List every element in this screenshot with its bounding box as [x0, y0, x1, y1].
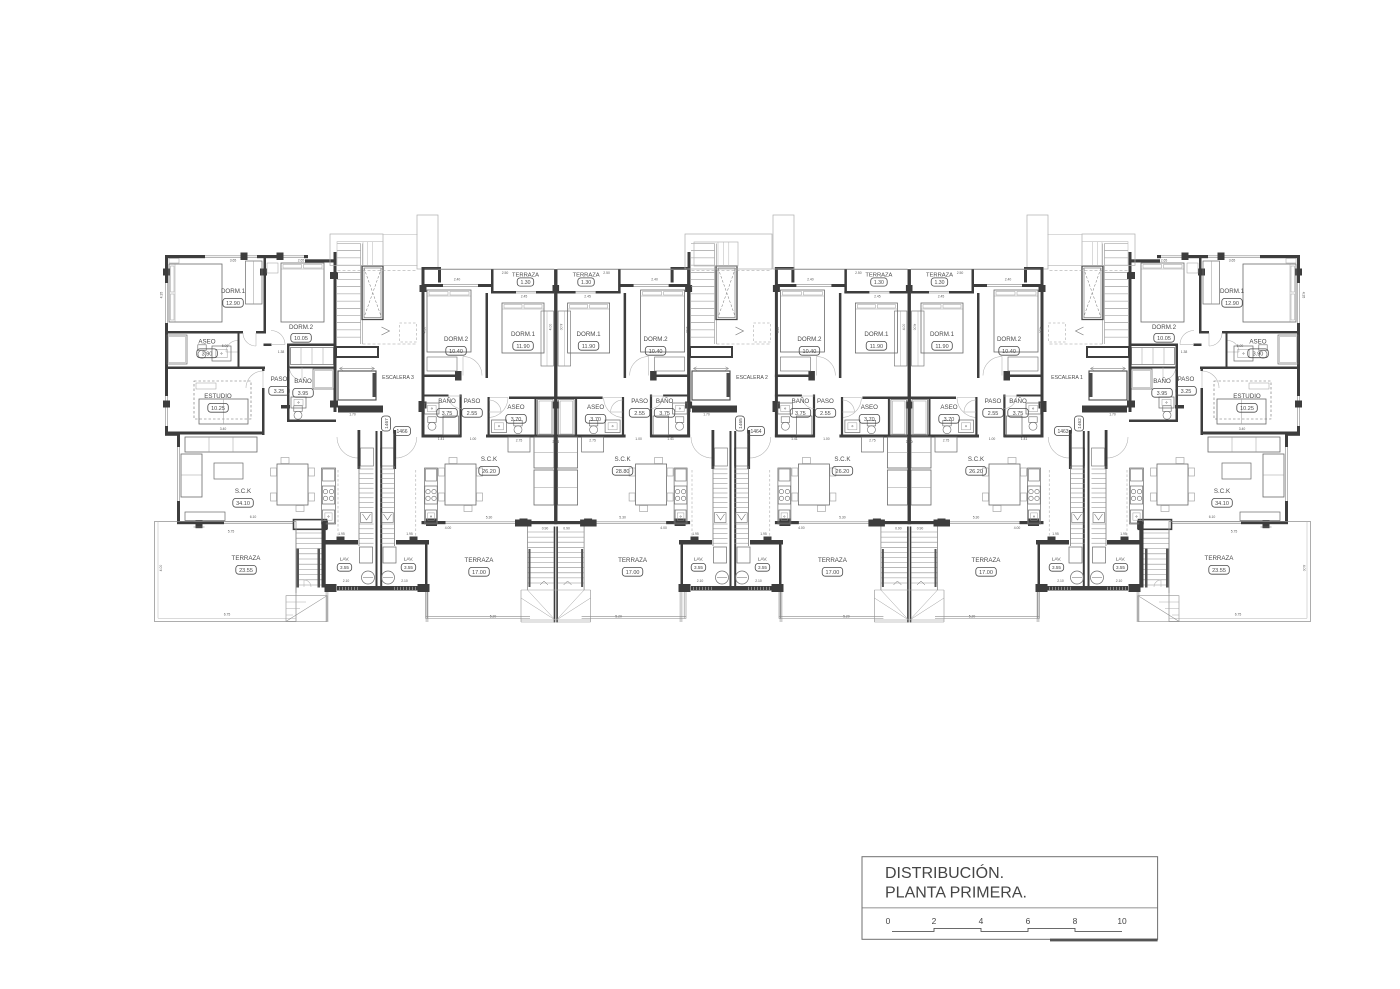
svg-text:S.C.K: S.C.K: [968, 456, 985, 463]
svg-text:5.00: 5.00: [1237, 344, 1244, 348]
svg-text:5.00: 5.00: [222, 344, 229, 348]
svg-text:5.30: 5.30: [839, 516, 846, 520]
svg-text:10.40: 10.40: [449, 349, 463, 355]
svg-text:5.75: 5.75: [228, 530, 235, 534]
svg-text:2.55: 2.55: [988, 411, 999, 417]
svg-text:3.00: 3.00: [552, 440, 559, 444]
svg-text:BAÑO: BAÑO: [1009, 398, 1027, 405]
svg-text:1465: 1465: [738, 418, 744, 429]
svg-text:ESCALERA 3: ESCALERA 3: [382, 375, 414, 381]
svg-text:PLANTA PRIMERA.: PLANTA PRIMERA.: [885, 884, 1027, 901]
svg-text:2.40: 2.40: [1005, 278, 1012, 282]
svg-text:4: 4: [979, 916, 984, 926]
svg-text:2.50: 2.50: [957, 271, 964, 275]
svg-text:3.55: 3.55: [758, 565, 767, 570]
svg-text:2.10: 2.10: [1057, 579, 1064, 583]
svg-text:1.00: 1.00: [989, 437, 996, 441]
svg-text:2.55: 2.55: [634, 411, 645, 417]
svg-text:DORM.1: DORM.1: [221, 288, 246, 295]
svg-text:11.90: 11.90: [516, 344, 529, 350]
svg-text:ESCALERA 2: ESCALERA 2: [736, 375, 768, 381]
svg-text:4.00: 4.00: [902, 324, 906, 331]
svg-text:PASO: PASO: [271, 376, 288, 383]
svg-text:1.95: 1.95: [692, 532, 699, 536]
svg-text:TERRAZA: TERRAZA: [618, 557, 648, 564]
svg-text:ASEO: ASEO: [1249, 339, 1266, 346]
svg-text:DORM.2: DORM.2: [444, 336, 469, 343]
svg-text:3.25: 3.25: [1181, 389, 1192, 395]
svg-text:LAV.: LAV.: [404, 557, 414, 563]
svg-text:12.90: 12.90: [1225, 301, 1239, 307]
svg-text:DORM.1: DORM.1: [577, 331, 602, 338]
svg-text:2.55: 2.55: [820, 411, 831, 417]
svg-text:5.20: 5.20: [490, 615, 497, 619]
svg-text:2.50: 2.50: [603, 271, 610, 275]
svg-text:2.10: 2.10: [755, 579, 762, 583]
svg-text:4.00: 4.00: [445, 526, 452, 530]
svg-text:ESTUDIO: ESTUDIO: [204, 393, 232, 400]
svg-text:3.00: 3.00: [906, 440, 913, 444]
svg-text:2.40: 2.40: [807, 278, 814, 282]
svg-text:1.41: 1.41: [791, 437, 798, 441]
svg-text:PASO: PASO: [464, 398, 481, 405]
svg-text:4.00: 4.00: [1014, 526, 1021, 530]
svg-text:0.90: 0.90: [563, 527, 570, 531]
svg-text:1.41: 1.41: [438, 437, 445, 441]
svg-text:3.75: 3.75: [442, 411, 453, 417]
svg-text:1.38: 1.38: [278, 350, 285, 354]
svg-text:10.40: 10.40: [803, 349, 817, 355]
svg-text:2.75: 2.75: [869, 439, 876, 443]
svg-text:ASEO: ASEO: [587, 404, 604, 411]
svg-text:4.00: 4.00: [159, 565, 163, 572]
svg-text:6.75: 6.75: [1235, 613, 1242, 617]
svg-text:10.25: 10.25: [1240, 406, 1254, 412]
svg-text:1462: 1462: [1077, 418, 1083, 429]
svg-text:4.00: 4.00: [798, 526, 805, 530]
svg-text:4.35: 4.35: [160, 292, 164, 299]
svg-text:1.30: 1.30: [520, 280, 530, 286]
svg-text:1.95: 1.95: [338, 532, 345, 536]
svg-text:1.41: 1.41: [667, 437, 674, 441]
svg-text:BAÑO: BAÑO: [294, 378, 312, 385]
svg-text:12.90: 12.90: [226, 301, 240, 307]
svg-text:2: 2: [932, 916, 937, 926]
svg-text:PASO: PASO: [631, 398, 648, 405]
svg-text:2.45: 2.45: [874, 295, 881, 299]
svg-text:PASO: PASO: [817, 398, 834, 405]
svg-text:3.70: 3.70: [864, 417, 875, 423]
svg-text:3.55: 3.55: [694, 565, 703, 570]
svg-text:4.00: 4.00: [1302, 565, 1306, 572]
svg-text:17.00: 17.00: [979, 570, 993, 576]
svg-text:10.40: 10.40: [649, 349, 663, 355]
svg-text:3.70: 3.70: [590, 417, 601, 423]
svg-text:11.90: 11.90: [870, 344, 883, 350]
svg-text:3.55: 3.55: [1116, 565, 1125, 570]
svg-text:2.10: 2.10: [401, 579, 408, 583]
svg-text:TERRAZA: TERRAZA: [232, 555, 262, 562]
svg-text:3.90: 3.90: [202, 351, 213, 357]
svg-text:2.75: 2.75: [516, 439, 523, 443]
svg-text:1.70: 1.70: [1109, 413, 1116, 417]
svg-text:1.30: 1.30: [874, 280, 884, 286]
svg-text:4.00: 4.00: [660, 526, 667, 530]
svg-text:4.30: 4.30: [1039, 327, 1043, 334]
svg-text:ESCALERA 1: ESCALERA 1: [1051, 375, 1083, 381]
svg-text:2.10: 2.10: [343, 579, 350, 583]
svg-text:5.30: 5.30: [619, 516, 626, 520]
svg-text:0: 0: [886, 916, 891, 926]
svg-text:1.00: 1.00: [470, 437, 477, 441]
svg-text:3.55: 3.55: [340, 565, 349, 570]
svg-text:S.C.K: S.C.K: [1214, 488, 1231, 495]
svg-text:11.90: 11.90: [935, 344, 948, 350]
svg-text:0.90: 0.90: [895, 527, 902, 531]
svg-text:1464: 1464: [750, 429, 761, 435]
svg-text:ESTUDIO: ESTUDIO: [1233, 393, 1261, 400]
svg-text:17.00: 17.00: [472, 570, 486, 576]
svg-text:8: 8: [1073, 916, 1078, 926]
svg-text:S.C.K: S.C.K: [235, 488, 252, 495]
svg-text:DORM.2: DORM.2: [797, 336, 822, 343]
svg-text:26.20: 26.20: [482, 469, 496, 475]
svg-text:LAV.: LAV.: [1052, 557, 1062, 563]
svg-text:DORM.2: DORM.2: [289, 324, 314, 331]
svg-text:PASO: PASO: [1178, 376, 1195, 383]
svg-text:3.40: 3.40: [220, 427, 227, 431]
svg-text:1463: 1463: [1057, 429, 1068, 435]
svg-text:DORM.1: DORM.1: [864, 331, 889, 338]
svg-text:4.00: 4.00: [913, 324, 917, 331]
svg-text:LAV.: LAV.: [340, 557, 350, 563]
svg-text:1.95: 1.95: [1120, 532, 1127, 536]
svg-text:1.00: 1.00: [635, 437, 642, 441]
svg-text:1466: 1466: [396, 429, 407, 435]
svg-text:2.45: 2.45: [521, 295, 528, 299]
svg-text:DORM.1: DORM.1: [511, 331, 536, 338]
svg-text:S.C.K: S.C.K: [481, 456, 498, 463]
svg-text:1467: 1467: [384, 418, 390, 429]
svg-text:4.30: 4.30: [423, 327, 427, 334]
svg-text:ASEO: ASEO: [861, 404, 878, 411]
svg-text:BAÑO: BAÑO: [438, 398, 456, 405]
svg-text:2.45: 2.45: [584, 295, 591, 299]
svg-text:3.90: 3.90: [1253, 351, 1264, 357]
svg-text:DORM.2: DORM.2: [1152, 324, 1177, 331]
svg-text:6: 6: [1026, 916, 1031, 926]
svg-text:6.10: 6.10: [250, 515, 257, 519]
svg-text:1.95: 1.95: [760, 532, 767, 536]
svg-text:2.65: 2.65: [298, 259, 305, 263]
svg-text:LAV.: LAV.: [1116, 557, 1126, 563]
svg-text:ASEO: ASEO: [940, 404, 957, 411]
svg-text:PASO: PASO: [985, 398, 1002, 405]
svg-text:3.70: 3.70: [511, 417, 522, 423]
svg-text:TERRAZA: TERRAZA: [818, 557, 848, 564]
svg-text:5.75: 5.75: [1231, 530, 1238, 534]
svg-text:3.55: 3.55: [1052, 565, 1061, 570]
svg-text:3.95: 3.95: [1157, 391, 1168, 397]
svg-text:2.45: 2.45: [938, 295, 945, 299]
svg-text:10: 10: [1117, 916, 1127, 926]
svg-text:17.00: 17.00: [826, 570, 840, 576]
svg-text:S.C.K: S.C.K: [834, 456, 851, 463]
svg-text:3.75: 3.75: [795, 411, 806, 417]
svg-text:2.10: 2.10: [1116, 579, 1123, 583]
svg-text:17.00: 17.00: [626, 570, 640, 576]
svg-text:5.30: 5.30: [973, 516, 980, 520]
svg-text:DISTRIBUCIÓN.: DISTRIBUCIÓN.: [885, 863, 1004, 882]
svg-text:4.35: 4.35: [1302, 292, 1306, 299]
svg-text:1.70: 1.70: [703, 413, 710, 417]
svg-text:LAV.: LAV.: [694, 557, 704, 563]
svg-text:3.40: 3.40: [1239, 427, 1246, 431]
svg-text:BAÑO: BAÑO: [656, 398, 674, 405]
svg-text:6.75: 6.75: [224, 613, 231, 617]
svg-text:2.50: 2.50: [502, 271, 509, 275]
svg-text:1.95: 1.95: [406, 532, 413, 536]
svg-text:10.40: 10.40: [1002, 349, 1016, 355]
svg-text:2.75: 2.75: [943, 439, 950, 443]
svg-text:5.30: 5.30: [486, 516, 493, 520]
svg-text:5.20: 5.20: [615, 615, 622, 619]
svg-text:10.25: 10.25: [211, 406, 225, 412]
svg-text:4.30: 4.30: [776, 327, 780, 334]
svg-text:28.80: 28.80: [616, 469, 630, 475]
svg-text:LAV.: LAV.: [758, 557, 768, 563]
svg-text:1.38: 1.38: [1181, 350, 1188, 354]
svg-text:6.10: 6.10: [1209, 515, 1216, 519]
svg-text:26.20: 26.20: [969, 469, 983, 475]
svg-text:2.50: 2.50: [855, 271, 862, 275]
svg-text:1.70: 1.70: [349, 413, 356, 417]
svg-text:1.41: 1.41: [1021, 437, 1028, 441]
svg-text:3.25: 3.25: [274, 389, 285, 395]
svg-text:DORM.1: DORM.1: [930, 331, 955, 338]
svg-text:3.65: 3.65: [1229, 259, 1236, 263]
svg-text:BAÑO: BAÑO: [792, 398, 810, 405]
svg-text:11.90: 11.90: [582, 344, 595, 350]
svg-text:2.55: 2.55: [467, 411, 478, 417]
svg-text:1.30: 1.30: [581, 280, 591, 286]
svg-text:2.65: 2.65: [1161, 259, 1168, 263]
svg-text:23.55: 23.55: [239, 568, 253, 574]
svg-text:2.75: 2.75: [589, 439, 596, 443]
svg-text:0.90: 0.90: [917, 527, 924, 531]
svg-text:ASEO: ASEO: [507, 404, 524, 411]
svg-text:3.75: 3.75: [659, 411, 670, 417]
svg-text:26.20: 26.20: [836, 469, 850, 475]
svg-text:DORM.2: DORM.2: [644, 336, 669, 343]
svg-text:ASEO: ASEO: [198, 339, 215, 346]
svg-text:2.10: 2.10: [697, 579, 704, 583]
svg-text:3.65: 3.65: [230, 259, 237, 263]
svg-text:3.75: 3.75: [1013, 411, 1024, 417]
svg-text:1.00: 1.00: [823, 437, 830, 441]
svg-text:1.30: 1.30: [934, 280, 944, 286]
svg-text:3.70: 3.70: [944, 417, 955, 423]
svg-text:S.C.K: S.C.K: [615, 456, 632, 463]
svg-text:3.55: 3.55: [404, 565, 413, 570]
svg-text:4.00: 4.00: [549, 324, 553, 331]
svg-text:5.20: 5.20: [843, 615, 850, 619]
svg-text:BAÑO: BAÑO: [1153, 378, 1171, 385]
svg-text:5.20: 5.20: [969, 615, 976, 619]
svg-text:TERRAZA: TERRAZA: [465, 557, 495, 564]
svg-text:TERRAZA: TERRAZA: [1205, 555, 1235, 562]
svg-text:10.05: 10.05: [1157, 336, 1171, 342]
svg-text:2.40: 2.40: [454, 278, 461, 282]
svg-text:TERRAZA: TERRAZA: [972, 557, 1002, 564]
svg-text:0.90: 0.90: [542, 527, 549, 531]
svg-text:3.95: 3.95: [298, 391, 309, 397]
svg-text:23.55: 23.55: [1212, 568, 1226, 574]
svg-text:34.10: 34.10: [1215, 501, 1229, 507]
svg-text:4.00: 4.00: [559, 324, 563, 331]
svg-text:10.05: 10.05: [294, 336, 308, 342]
svg-text:34.10: 34.10: [236, 501, 250, 507]
svg-text:2.40: 2.40: [651, 278, 658, 282]
svg-text:1.95: 1.95: [1052, 532, 1059, 536]
svg-text:DORM.1: DORM.1: [1220, 288, 1245, 295]
svg-text:DORM.2: DORM.2: [997, 336, 1022, 343]
